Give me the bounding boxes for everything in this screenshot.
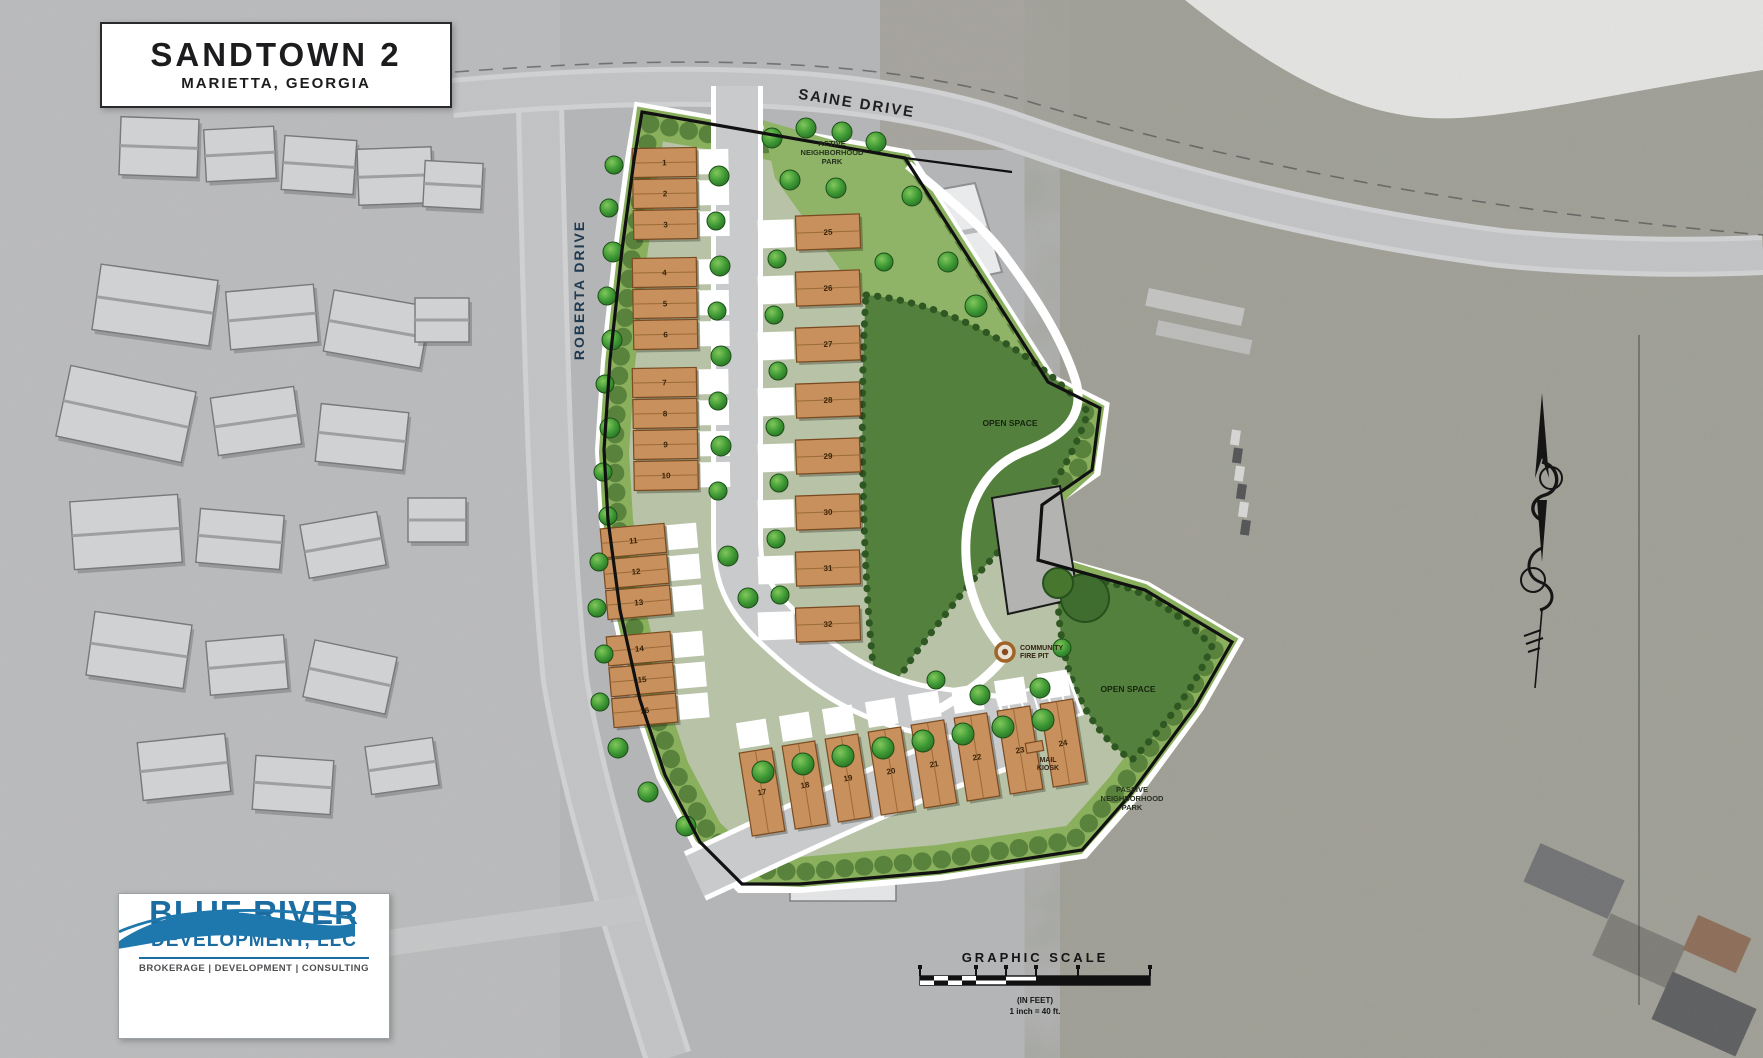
driveway — [669, 553, 701, 581]
tree — [1043, 568, 1073, 598]
site-plan-sheet: 1234567891011121314151625262728293031321… — [0, 0, 1763, 1058]
tree — [762, 128, 782, 148]
scale-ratio: 1 inch = 40 ft. — [1010, 1007, 1061, 1016]
driveway — [758, 443, 795, 472]
community-fire-pit-icon — [996, 643, 1014, 661]
driveway — [994, 677, 1028, 707]
tree — [965, 295, 987, 317]
tree — [1030, 678, 1050, 698]
tree — [970, 685, 990, 705]
driveway — [672, 584, 704, 612]
tree — [638, 782, 658, 802]
svg-text:FIRE PIT: FIRE PIT — [1020, 653, 1050, 660]
open-space-lower-label: OPEN SPACE — [1100, 684, 1155, 694]
unit-number: 28 — [823, 396, 833, 405]
driveway — [779, 712, 813, 742]
tree — [709, 392, 727, 410]
tree — [711, 436, 731, 456]
tree — [832, 745, 854, 767]
tree — [875, 253, 893, 271]
driveway — [672, 631, 704, 659]
open-space-upper-label: OPEN SPACE — [982, 418, 1037, 428]
svg-text:PARK: PARK — [1122, 803, 1143, 812]
roberta-drive-label: ROBERTA DRIVE — [571, 220, 587, 360]
tree — [595, 645, 613, 663]
mail-kiosk-icon — [1025, 741, 1043, 754]
unit-number: 30 — [823, 508, 833, 517]
unit-number: 2 — [663, 189, 668, 198]
tree — [608, 738, 628, 758]
driveway — [758, 275, 795, 304]
tree — [992, 716, 1014, 738]
scale-units: (IN FEET) — [1017, 996, 1053, 1005]
driveway — [699, 321, 729, 347]
tree — [866, 132, 886, 152]
title-block: SANDTOWN 2 MARIETTA, GEORGIA — [100, 22, 452, 108]
driveway — [822, 705, 856, 735]
unit-number: 29 — [823, 452, 833, 461]
driveway — [678, 692, 710, 720]
tree — [938, 252, 958, 272]
unit-number: 11 — [629, 536, 639, 546]
svg-text:MAIL: MAIL — [1039, 757, 1057, 764]
tree — [718, 546, 738, 566]
unit-number: 6 — [663, 330, 668, 339]
tree — [591, 693, 609, 711]
driveway — [758, 499, 795, 528]
unit-number: 13 — [634, 598, 644, 608]
tree — [769, 362, 787, 380]
unit-number: 7 — [662, 378, 667, 387]
tree — [711, 346, 731, 366]
tree — [600, 199, 618, 217]
unit-number: 12 — [631, 567, 641, 577]
driveway — [666, 523, 698, 551]
svg-text:ACTIVE: ACTIVE — [818, 139, 846, 148]
tree — [596, 375, 614, 393]
driveway — [758, 611, 795, 640]
unit-number: 10 — [662, 471, 672, 480]
tree — [912, 730, 934, 752]
tree — [767, 530, 785, 548]
unit-number: 8 — [663, 409, 668, 418]
unit-number: 27 — [823, 340, 833, 349]
tree — [902, 186, 922, 206]
unit-number: 31 — [823, 564, 833, 573]
project-title: SANDTOWN 2 — [150, 38, 401, 73]
tree — [796, 118, 816, 138]
tree — [709, 482, 727, 500]
svg-text:KIOSK: KIOSK — [1037, 765, 1059, 772]
tree — [826, 178, 846, 198]
tree — [707, 212, 725, 230]
river-wave-icon — [119, 902, 355, 954]
mail-kiosk-label: MAIL KIOSK — [1037, 757, 1059, 772]
tree — [771, 586, 789, 604]
tree — [738, 588, 758, 608]
unit-number: 1 — [662, 158, 667, 167]
unit-number: 9 — [663, 440, 668, 449]
tree — [594, 463, 612, 481]
tree — [952, 723, 974, 745]
developer-logo: BLUE RIVER DEVELOPMENT, LLC BROKERAGE | … — [118, 893, 390, 1039]
driveway — [758, 331, 795, 360]
driveway — [736, 719, 770, 749]
tree — [768, 250, 786, 268]
unit-number: 15 — [637, 675, 647, 685]
tree — [710, 256, 730, 276]
graphic-scale-title: GRAPHIC SCALE — [962, 950, 1109, 965]
tree — [927, 671, 945, 689]
tree — [605, 156, 623, 174]
tree — [1032, 709, 1054, 731]
tree — [598, 287, 616, 305]
unit-number: 5 — [663, 299, 668, 308]
tree — [752, 761, 774, 783]
svg-text:NEIGHBORHOOD: NEIGHBORHOOD — [801, 148, 865, 157]
tree — [770, 474, 788, 492]
tree — [872, 737, 894, 759]
logo-tagline: BROKERAGE | DEVELOPMENT | CONSULTING — [139, 963, 369, 974]
svg-text:PARK: PARK — [822, 157, 843, 166]
logo-divider — [139, 957, 369, 959]
tree — [792, 753, 814, 775]
unit-number: 3 — [663, 220, 668, 229]
unit-number: 25 — [823, 228, 833, 237]
unit-number: 4 — [662, 268, 667, 277]
project-location: MARIETTA, GEORGIA — [181, 75, 371, 92]
tree — [780, 170, 800, 190]
driveway — [908, 691, 942, 721]
svg-text:COMMUNITY: COMMUNITY — [1020, 645, 1063, 652]
unit-number: 32 — [823, 620, 833, 629]
driveway — [758, 555, 795, 584]
tree — [709, 166, 729, 186]
unit-number: 26 — [823, 284, 833, 293]
tree — [708, 302, 726, 320]
unit-number: 14 — [635, 644, 645, 654]
svg-text:NEIGHBORHOOD: NEIGHBORHOOD — [1101, 794, 1165, 803]
tree — [590, 553, 608, 571]
tree — [766, 418, 784, 436]
tree — [765, 306, 783, 324]
driveway — [758, 387, 795, 416]
driveway — [675, 661, 707, 689]
tree — [600, 418, 620, 438]
svg-text:PASSIVE: PASSIVE — [1116, 785, 1148, 794]
driveway — [698, 369, 728, 395]
driveway — [758, 219, 795, 248]
driveway — [865, 698, 899, 728]
tree — [588, 599, 606, 617]
